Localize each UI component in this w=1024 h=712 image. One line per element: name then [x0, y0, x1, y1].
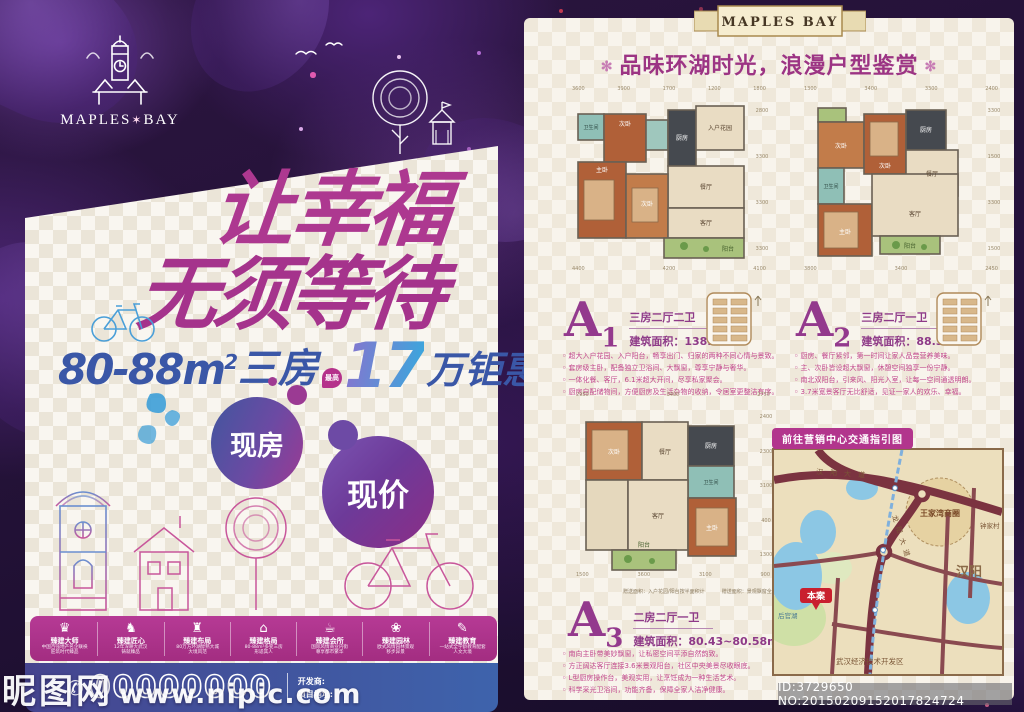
blue-leaves-icon: [132, 388, 188, 468]
building-icon: ⌂: [232, 622, 295, 636]
svg-text:次卧: 次卧: [608, 448, 620, 456]
unit-a2-bullets: 厨房、餐厅紧邻，第一时间让家人品尝营养美味。 主、次卧皆设超大飘窗，休憩空间独享…: [794, 350, 1020, 398]
svg-text:客厅: 客厅: [700, 219, 712, 227]
svg-text:次卧: 次卧: [619, 120, 631, 128]
svg-text:卫生间: 卫生间: [583, 124, 598, 131]
club-icon: ☕: [298, 622, 361, 636]
keyplan-a1-icon: [706, 292, 764, 346]
id-watermark: ID:3729650 NO:20150209152017824724: [778, 683, 1012, 705]
page-title: ✻品味环湖时光，浪漫户型鉴赏✻: [544, 48, 994, 80]
feature-craft: ♞ 臻建匠心 12年深耕大武汉 铸就臻品: [98, 622, 164, 656]
feature-garden: ❀ 臻建园林 欧式风情园林景观 移步异景: [363, 622, 429, 656]
orange-swatch: [616, 589, 621, 594]
dims-top: 295034002750: [560, 392, 786, 400]
headline-line1: 让幸福: [160, 168, 499, 254]
svg-text:入户花园: 入户花园: [708, 124, 732, 132]
rooms-text: 三房: [238, 336, 318, 394]
dims-bottom: 440042004100: [556, 266, 782, 274]
ribbon-banner: MAPLES BAY: [694, 4, 866, 38]
svg-text:餐厅: 餐厅: [700, 183, 712, 191]
max-badge: 最高: [322, 368, 342, 388]
svg-text:卫生间: 卫生间: [703, 479, 718, 486]
flyer-spread: MAPLES✶BAY 让幸福 无须等待 80-88m2三房最高17万钜惠: [0, 0, 1024, 712]
svg-text:次卧: 次卧: [641, 200, 653, 208]
svg-text:客厅: 客厅: [652, 512, 664, 520]
brand-logo: MAPLES✶BAY: [52, 32, 188, 136]
svg-text:厨房: 厨房: [676, 134, 688, 142]
unit-a3-area: 建筑面积：80.43~80.58m²: [633, 633, 783, 649]
town-sketch-illustration: [38, 470, 490, 616]
svg-text:厨房: 厨房: [920, 126, 932, 134]
svg-text:餐厅: 餐厅: [659, 448, 671, 456]
dims-side: 2400230031004001300: [760, 400, 772, 572]
svg-text:厨房: 厨房: [705, 442, 717, 450]
svg-text:主卧: 主卧: [706, 524, 718, 532]
svg-text:次卧: 次卧: [835, 142, 847, 150]
dims-side: 2800330033003300: [756, 94, 768, 266]
map-title-chip: 前往营销中心交通指引图: [772, 428, 913, 449]
unit-a3-type: 二房二厅一卫: [633, 609, 713, 629]
floorplan-a1-drawing: 入户花园 厨房 餐厅 客厅 阳台 主卧 次卧 次卧 卫生间: [556, 94, 756, 266]
floorplan-a3-drawing: 次卧 餐厅 厨房 卫生间 客厅 主卧 阳台: [560, 400, 760, 572]
svg-text:阳台: 阳台: [904, 242, 916, 250]
unit-a3-bullets: 南向主卧带美妙飘窗，让私密空间平添自然韵致。 方正阔达客厅连接3.6米景观阳台，…: [562, 648, 802, 696]
floorplan-a1: 36003900170012001800: [556, 86, 782, 274]
svg-text:卫生间: 卫生间: [823, 183, 838, 190]
svg-text:主卧: 主卧: [839, 228, 851, 236]
svg-text:汉阳: 汉阳: [956, 564, 982, 580]
svg-text:餐厅: 餐厅: [926, 170, 938, 178]
unit-a1-bullets: 超大入户花园、入户阳台，畅享出门、归家的两种不同心情与景致。 套房级主卧，配备独…: [562, 350, 794, 398]
unit-a2-type: 三房二厅一卫: [861, 309, 941, 329]
clock-tower-logo-icon: [85, 32, 155, 110]
dims-bottom: 150036003100900: [560, 572, 786, 580]
lion-icon: ♞: [99, 622, 162, 636]
traffic-map: 汉阳大道 龙阳大道 王家湾商圈 钟家村 汉阳 本案 后官湖 武汉经济技术开发区: [772, 448, 1004, 676]
discount-number: 17: [344, 338, 424, 394]
feature-layout: ♜ 臻建布局 80万方环湖醇熟大城 大境风范: [165, 622, 231, 656]
feature-bar: ♛ 臻建大师 中国百强地产名企联袂 匠筑时代臻品 ♞ 臻建匠心 12年深耕大武汉…: [30, 616, 497, 661]
floorplan-a2: 1300340033002400 次卧: [788, 86, 1014, 274]
maple-star-icon: ✶: [131, 113, 143, 127]
dims-top: 1300340033002400: [788, 86, 1014, 94]
svg-text:后官湖: 后官湖: [778, 611, 798, 620]
feature-master: ♛ 臻建大师 中国百强地产名企联袂 匠筑时代臻品: [32, 622, 98, 656]
flower-deco-icon: ✻: [919, 59, 944, 75]
crown-icon: ♛: [33, 622, 96, 636]
birds-icon: [292, 38, 352, 68]
svg-text:客厅: 客厅: [909, 210, 921, 218]
keyplan-a2-icon: [936, 292, 994, 346]
green-swatch: [715, 589, 720, 594]
plan-legend: 赠送面积：入户花园/阳台按半面积计 赠送面积：景观飘窗全面积赠送: [616, 588, 792, 595]
nipic-watermark: 昵图网 www.nipic.com: [2, 664, 361, 712]
pencil-icon: ✎: [431, 622, 494, 636]
svg-text:阳台: 阳台: [638, 541, 650, 549]
svg-text:MAPLES BAY: MAPLES BAY: [722, 15, 839, 30]
svg-text:主卧: 主卧: [596, 166, 608, 174]
feature-club: ☕ 臻建会所 国际风情商业内街 尊享都市繁华: [297, 622, 363, 656]
dims-bottom: 380034002450: [788, 266, 1014, 274]
legend-item-orange: 赠送面积：入户花园/阳台按半面积计: [616, 588, 705, 595]
flower-icon: ❀: [364, 622, 427, 636]
brand-name: MAPLES✶BAY: [52, 112, 188, 129]
floorplan-a2-drawing: 次卧 次卧 厨房 餐厅 卫生间 主卧 客厅 阳台: [788, 94, 988, 266]
rook-icon: ♜: [166, 622, 229, 636]
svg-text:次卧: 次卧: [879, 162, 891, 170]
flower-deco-icon: ✻: [595, 59, 620, 75]
unit-a1-type: 三房二厅二卫: [629, 309, 709, 329]
feature-education: ✎ 臻建教育 一站式全学龄教育配套 人文大境: [430, 622, 495, 656]
svg-text:武汉经济技术开发区: 武汉经济技术开发区: [836, 656, 904, 666]
floorplan-a3: 295034002750 次卧 餐厅: [560, 392, 786, 580]
dims-top: 36003900170012001800: [556, 86, 782, 94]
svg-text:钟家村: 钟家村: [980, 521, 1000, 530]
dims-side: 3300150033001500: [988, 94, 1000, 266]
svg-text:阳台: 阳台: [722, 245, 734, 253]
white-tree-pavilion-sketch: [352, 64, 462, 160]
svg-text:本案: 本案: [807, 590, 826, 602]
svg-text:王家湾商圈: 王家湾商圈: [920, 508, 960, 518]
area-range: 80-88m2: [58, 345, 236, 394]
feature-pattern: ⌂ 臻建格局 80-88m²多变三房 形适其人: [231, 622, 297, 656]
